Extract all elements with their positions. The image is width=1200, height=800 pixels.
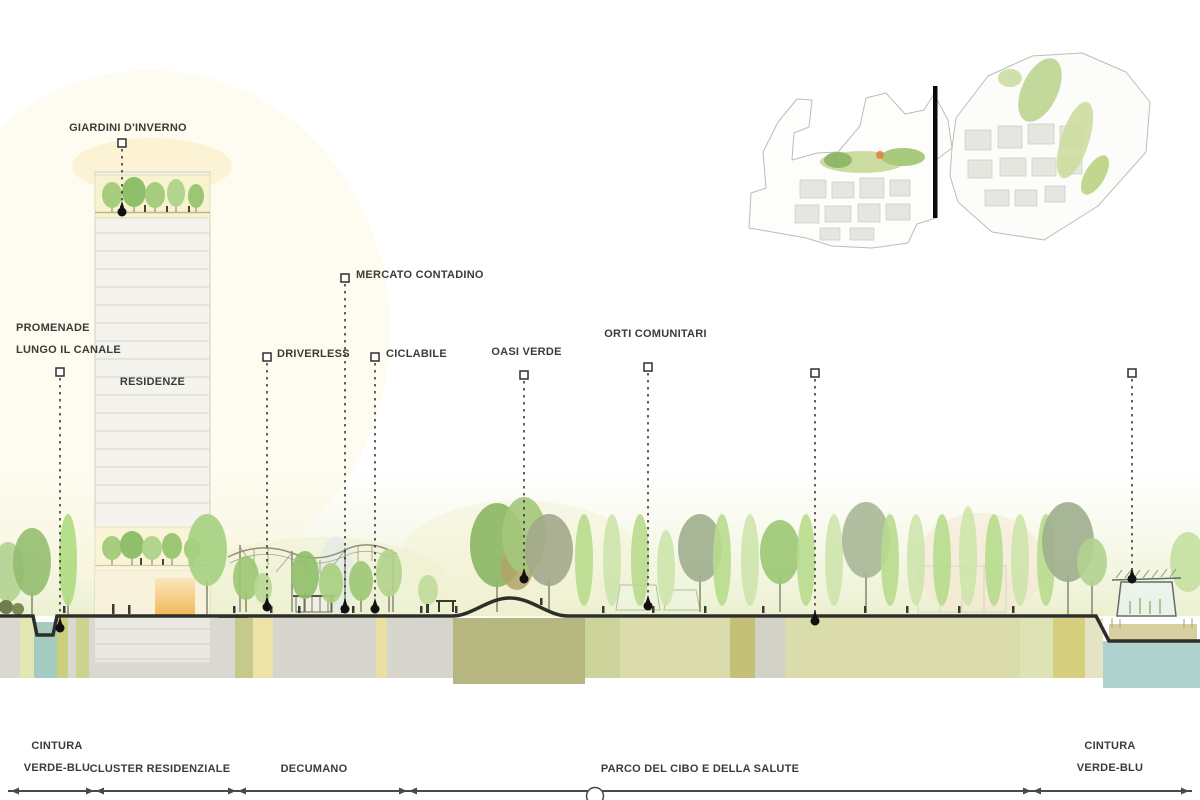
- entrance-highlight: [155, 578, 195, 615]
- annotation-label-giardini: GIARDINI D'INVERNO: [58, 117, 198, 139]
- zone-label-cintura-right: CINTURA VERDE-BLU: [1058, 735, 1162, 779]
- cintura-right-line1: CINTURA: [1058, 735, 1162, 757]
- section-circle-symbol: [587, 788, 604, 800]
- zone-label-cluster: CLUSTER RESIDENZIALE: [80, 758, 240, 780]
- annotation-label-driverless: DRIVERLESS: [277, 343, 350, 365]
- annotation-label-promenade: PROMENADE LUNGO IL CANALE: [16, 317, 121, 361]
- basin-water: [1103, 641, 1200, 688]
- annotation-label-orti: ORTI COMUNITARI: [593, 323, 718, 345]
- annotation-label-ciclabile: CICLABILE: [386, 343, 447, 365]
- winter-garden-top: [95, 175, 210, 218]
- tower-base: [95, 571, 210, 615]
- promenade-line2: LUNGO IL CANALE: [16, 339, 121, 361]
- annotation-label-mercato: MERCATO CONTADINO: [356, 264, 484, 286]
- zone-label-decumano: DECUMANO: [255, 758, 373, 780]
- dimension-line: [8, 788, 1192, 800]
- cintura-left-line1: CINTURA: [7, 735, 107, 757]
- annotation-label-oasi: OASI VERDE: [474, 341, 579, 363]
- zone-label-parco: PARCO DEL CIBO E DELLA SALUTE: [565, 758, 835, 780]
- building-label-residenze: RESIDENZE: [95, 371, 210, 393]
- promenade-line1: PROMENADE: [16, 317, 121, 339]
- underground-strata: [0, 618, 1103, 684]
- section-cut-line: [933, 86, 938, 218]
- cintura-right-line2: VERDE-BLU: [1058, 757, 1162, 779]
- masterplan-inset: [749, 52, 1150, 248]
- section-diagram: PROMENADE LUNGO IL CANALE GIARDINI D'INV…: [0, 0, 1200, 800]
